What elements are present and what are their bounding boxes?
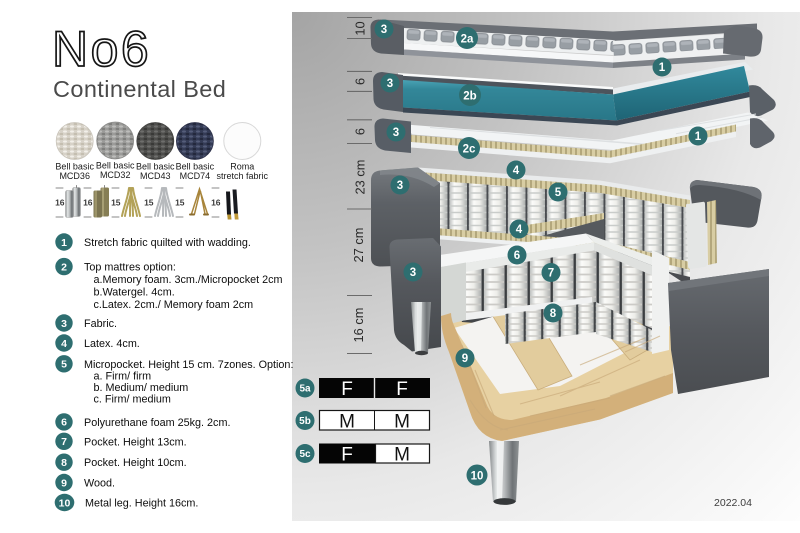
svg-text:a. Firm/ firm: a. Firm/ firm	[94, 371, 152, 383]
svg-text:9: 9	[462, 353, 468, 365]
svg-text:3: 3	[61, 318, 67, 330]
svg-text:3: 3	[381, 24, 387, 36]
svg-text:Latex. 4cm.: Latex. 4cm.	[84, 338, 140, 350]
svg-text:5: 5	[555, 187, 562, 199]
svg-text:b. Medium/ medium: b. Medium/ medium	[94, 382, 189, 394]
svg-text:MCD36: MCD36	[59, 171, 90, 181]
svg-text:a.Memory foam. 3cm./Micropocke: a.Memory foam. 3cm./Micropocket 2cm	[94, 274, 283, 286]
svg-text:3: 3	[397, 180, 403, 192]
svg-text:3: 3	[410, 267, 416, 279]
svg-text:10: 10	[471, 470, 484, 482]
svg-text:Bell basic: Bell basic	[96, 161, 135, 171]
svg-text:Bell basic: Bell basic	[176, 162, 215, 172]
svg-text:10: 10	[353, 21, 368, 35]
svg-text:Top mattres option:: Top mattres option:	[84, 262, 176, 274]
svg-text:8: 8	[550, 308, 557, 320]
svg-text:Fabric.: Fabric.	[84, 318, 117, 330]
svg-text:Pocket. Height 13cm.: Pocket. Height 13cm.	[84, 436, 187, 448]
svg-text:2: 2	[61, 261, 67, 273]
svg-text:7: 7	[548, 268, 554, 280]
svg-text:4: 4	[516, 224, 523, 236]
svg-text:6: 6	[61, 417, 67, 429]
svg-text:23 cm: 23 cm	[353, 160, 368, 195]
svg-text:4: 4	[513, 165, 520, 177]
svg-text:1: 1	[659, 62, 666, 74]
svg-text:16: 16	[211, 198, 221, 208]
svg-text:2c: 2c	[463, 143, 476, 155]
svg-text:MCD74: MCD74	[180, 171, 211, 181]
svg-text:Wood.: Wood.	[84, 478, 115, 490]
svg-text:1: 1	[695, 131, 702, 143]
svg-text:27 cm: 27 cm	[351, 228, 366, 263]
svg-text:3: 3	[387, 78, 393, 90]
svg-text:Polyurethane foam 25kg. 2cm.: Polyurethane foam 25kg. 2cm.	[84, 417, 230, 429]
svg-text:M: M	[339, 412, 355, 433]
svg-text:8: 8	[61, 457, 67, 469]
svg-text:Bell basic: Bell basic	[55, 162, 94, 172]
svg-text:Continental Bed: Continental Bed	[53, 76, 226, 102]
svg-text:c. Firm/ medium: c. Firm/ medium	[94, 393, 171, 405]
svg-text:MCD32: MCD32	[100, 170, 131, 180]
svg-text:2022.04: 2022.04	[714, 497, 752, 509]
svg-text:5a: 5a	[299, 384, 311, 395]
svg-text:2b: 2b	[463, 90, 476, 102]
svg-text:No6: No6	[52, 21, 151, 77]
svg-text:F: F	[341, 379, 353, 400]
svg-text:b.Watergel. 4cm.: b.Watergel. 4cm.	[94, 286, 175, 298]
svg-text:c.Latex. 2cm./ Memory foam 2cm: c.Latex. 2cm./ Memory foam 2cm	[94, 299, 254, 311]
svg-text:Pocket. Height 10cm.: Pocket. Height 10cm.	[84, 457, 187, 469]
svg-text:Roma: Roma	[230, 162, 254, 172]
svg-text:5b: 5b	[299, 416, 311, 427]
svg-text:F: F	[396, 379, 408, 400]
svg-text:15: 15	[175, 198, 185, 208]
svg-text:M: M	[394, 444, 410, 465]
svg-text:Bell basic: Bell basic	[136, 162, 175, 172]
svg-text:2a: 2a	[461, 33, 474, 45]
svg-text:stretch fabric: stretch fabric	[217, 171, 269, 181]
svg-text:9: 9	[61, 477, 67, 489]
svg-text:5: 5	[61, 359, 67, 371]
svg-text:16 cm: 16 cm	[351, 308, 366, 343]
svg-text:6: 6	[514, 250, 520, 262]
svg-text:MCD43: MCD43	[140, 171, 171, 181]
svg-text:16: 16	[83, 198, 93, 208]
svg-text:Stretch fabric quilted with wa: Stretch fabric quilted with wadding.	[84, 237, 251, 249]
svg-text:16: 16	[55, 198, 65, 208]
svg-text:4: 4	[61, 338, 67, 350]
svg-text:7: 7	[61, 436, 67, 448]
svg-text:15: 15	[111, 198, 121, 208]
svg-text:M: M	[394, 412, 410, 433]
svg-text:3: 3	[393, 127, 399, 139]
svg-text:6: 6	[353, 128, 368, 135]
svg-text:5c: 5c	[299, 449, 311, 460]
svg-text:F: F	[341, 444, 353, 465]
svg-text:6: 6	[353, 78, 368, 85]
svg-text:1: 1	[61, 237, 67, 249]
svg-text:15: 15	[144, 198, 154, 208]
svg-text:10: 10	[59, 497, 71, 509]
svg-text:Micropocket. Height 15 cm. 7zo: Micropocket. Height 15 cm. 7zones. Optio…	[84, 359, 293, 371]
svg-text:Metal leg. Height 16cm.: Metal leg. Height 16cm.	[85, 498, 198, 510]
